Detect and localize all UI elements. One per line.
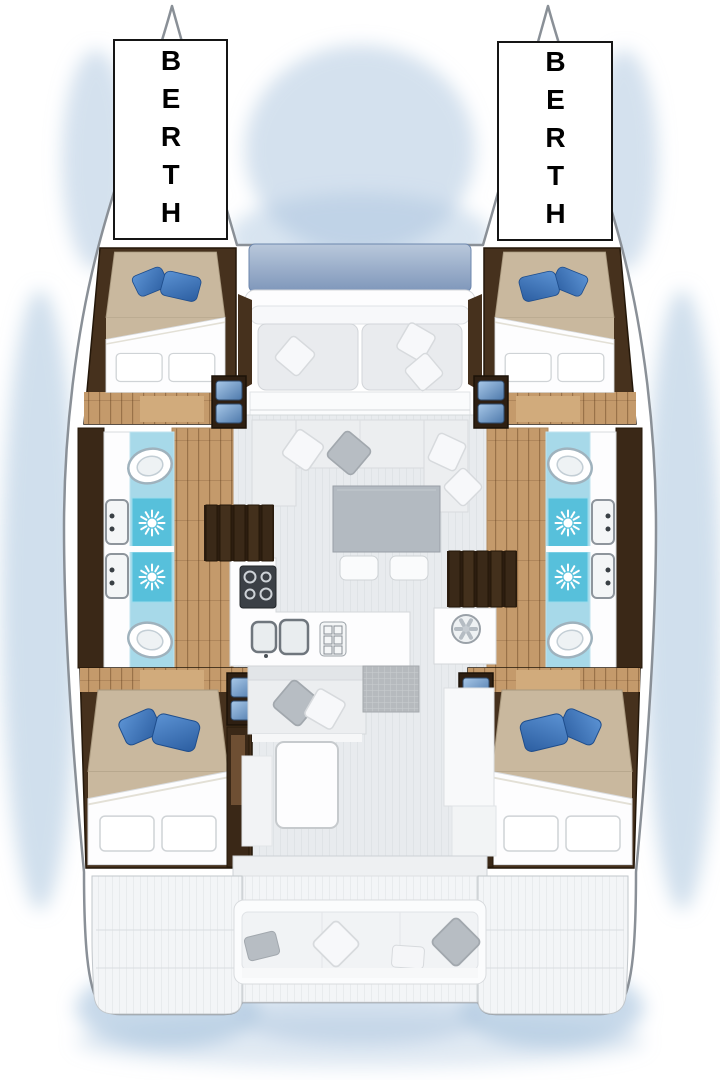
starboard-berth-label: BERTH — [541, 46, 569, 236]
starboard-berth-label-box: BERTH — [497, 41, 613, 241]
stbd-fore-cabin — [474, 248, 636, 428]
washbasin-icon — [106, 554, 128, 598]
bathroom-divider — [546, 546, 592, 552]
cockpit-bench-lip — [242, 968, 478, 978]
catamaran-floor-plan: BERTH BERTH — [0, 0, 720, 1080]
double-bed — [495, 252, 614, 392]
locker — [242, 756, 272, 846]
ottoman — [390, 556, 428, 580]
port-berth-label: BERTH — [157, 45, 185, 235]
washbasin-icon — [106, 500, 128, 544]
sofa-arm-port — [252, 420, 296, 506]
washbasin-icon — [592, 500, 614, 544]
fore-cockpit-backrest — [250, 306, 470, 324]
port-bathrooms — [78, 428, 176, 668]
cabin-floor-panel — [516, 670, 580, 690]
stbd-bathrooms — [544, 428, 642, 668]
cabin-floor-panel — [140, 396, 204, 422]
port-fore-cabin — [84, 248, 246, 428]
aft-cockpit — [92, 876, 628, 1014]
stove-burners-icon — [240, 566, 276, 608]
door-mat — [363, 666, 419, 712]
double-bed — [88, 690, 228, 865]
trampoline — [249, 244, 471, 292]
cabin-floor-panel — [516, 396, 580, 422]
wardrobe — [78, 428, 104, 668]
white-pillow — [391, 945, 424, 969]
extractor-fan-icon — [452, 615, 480, 643]
hob-grate-icon — [320, 622, 346, 656]
companionway-steps-icon — [474, 376, 508, 428]
double-bed — [492, 690, 632, 865]
ottoman — [340, 556, 378, 580]
cabin-floor-panel — [140, 670, 204, 690]
wardrobe — [616, 428, 642, 668]
aft-sofa-back — [248, 666, 366, 680]
stbd-stern-platform — [478, 876, 628, 1014]
windshield-band — [250, 392, 470, 418]
salon-table — [333, 486, 440, 552]
bathroom-divider — [128, 546, 174, 552]
port-berth-label-box: BERTH — [113, 39, 228, 240]
stbd-hull-stairs — [447, 551, 517, 607]
locker — [452, 806, 496, 856]
aft-table — [276, 742, 338, 828]
companionway-steps-icon — [212, 376, 246, 428]
port-hull-stairs — [204, 505, 274, 561]
aft-sofa-lip — [252, 734, 362, 742]
port-stern-platform — [92, 876, 242, 1014]
salon-aft-wall — [233, 856, 487, 876]
nav-desk — [444, 688, 494, 806]
double-bed — [106, 252, 225, 392]
washbasin-icon — [592, 554, 614, 598]
port-aft-cabin — [80, 668, 261, 868]
